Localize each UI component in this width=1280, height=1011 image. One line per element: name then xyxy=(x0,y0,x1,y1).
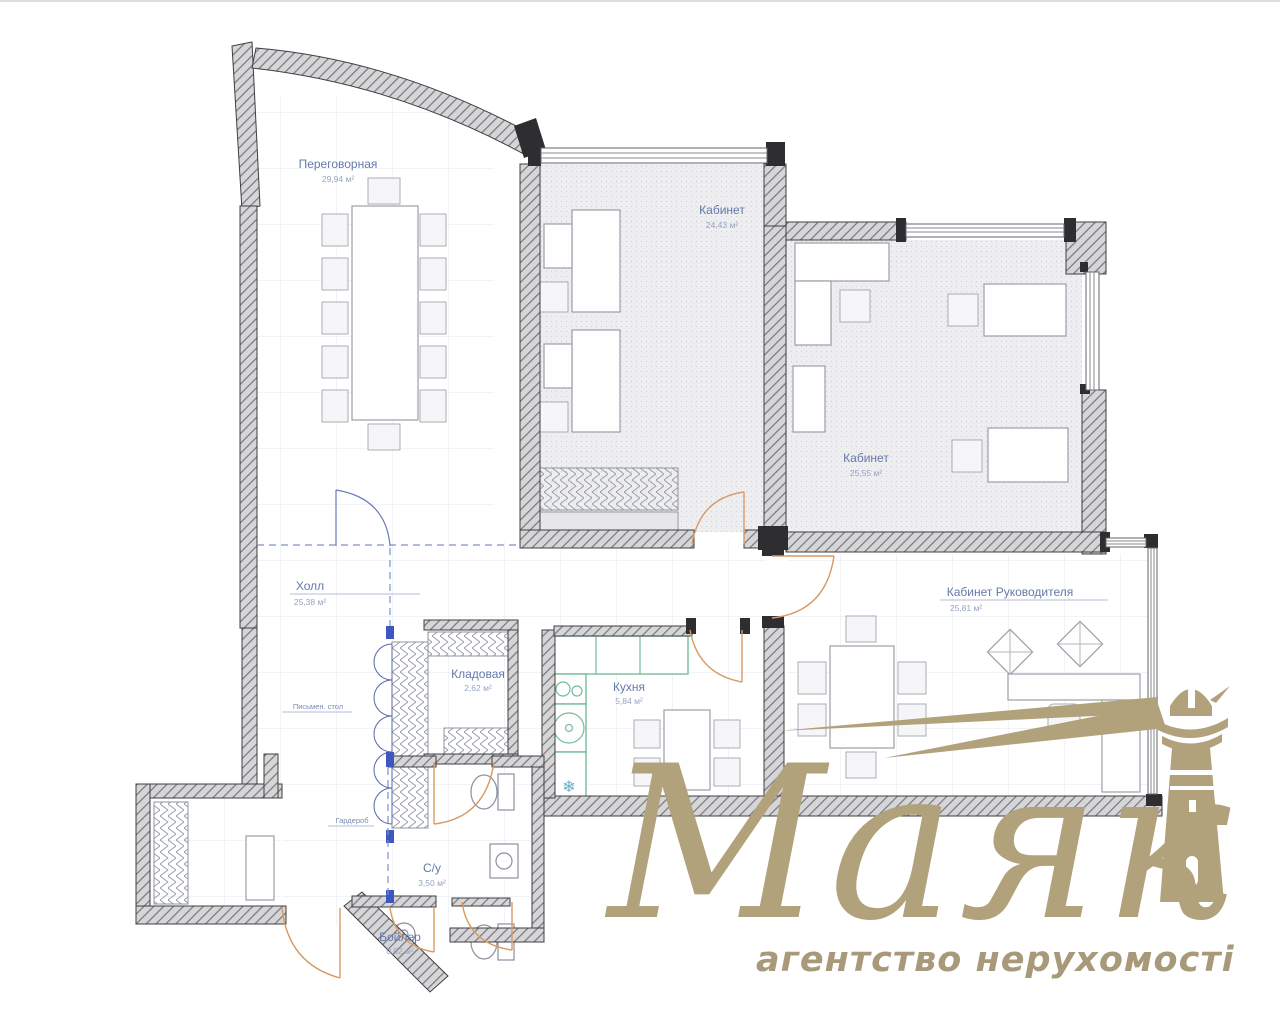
room-area-boiler: 0,52 м² xyxy=(386,946,414,956)
room-label-wc: С/у xyxy=(423,861,441,875)
room-area-office1: 24,43 м² xyxy=(706,220,738,230)
room-area-meeting: 29,94 м² xyxy=(322,174,354,184)
room-label-storage: Кладовая xyxy=(451,667,505,681)
room-label-director: Кабинет Руководителя xyxy=(947,585,1074,599)
room-label-hall: Холл xyxy=(296,579,324,593)
floor-plan-canvas: ❄ xyxy=(0,0,1280,1011)
fridge-snowflake-icon: ❄ xyxy=(562,779,575,796)
watermark-title: Маяк xyxy=(608,738,1234,950)
room-area-kitchen: 5,84 м² xyxy=(615,696,643,706)
meeting-room-furniture xyxy=(322,178,446,450)
room-label-meeting: Переговорная xyxy=(299,157,378,171)
room-area-hall: 25,38 м² xyxy=(294,597,326,607)
annotation-wardrobe: Гардероб xyxy=(336,816,369,825)
watermark-subtitle: агентство нерухомості xyxy=(756,940,1235,980)
room-label-boiler: Бойлер xyxy=(379,930,421,944)
annotation-desk: Письмен. стол xyxy=(293,702,343,711)
room-label-office2: Кабинет xyxy=(843,451,889,465)
room-area-director: 25,81 м² xyxy=(950,603,982,613)
room-area-storage: 2,62 м² xyxy=(464,683,492,693)
room-area-office2: 25,55 м² xyxy=(850,468,882,478)
room-area-wc: 3,50 м² xyxy=(418,878,446,888)
room-label-kitchen: Кухня xyxy=(613,680,645,694)
room-label-office1: Кабинет xyxy=(699,203,745,217)
